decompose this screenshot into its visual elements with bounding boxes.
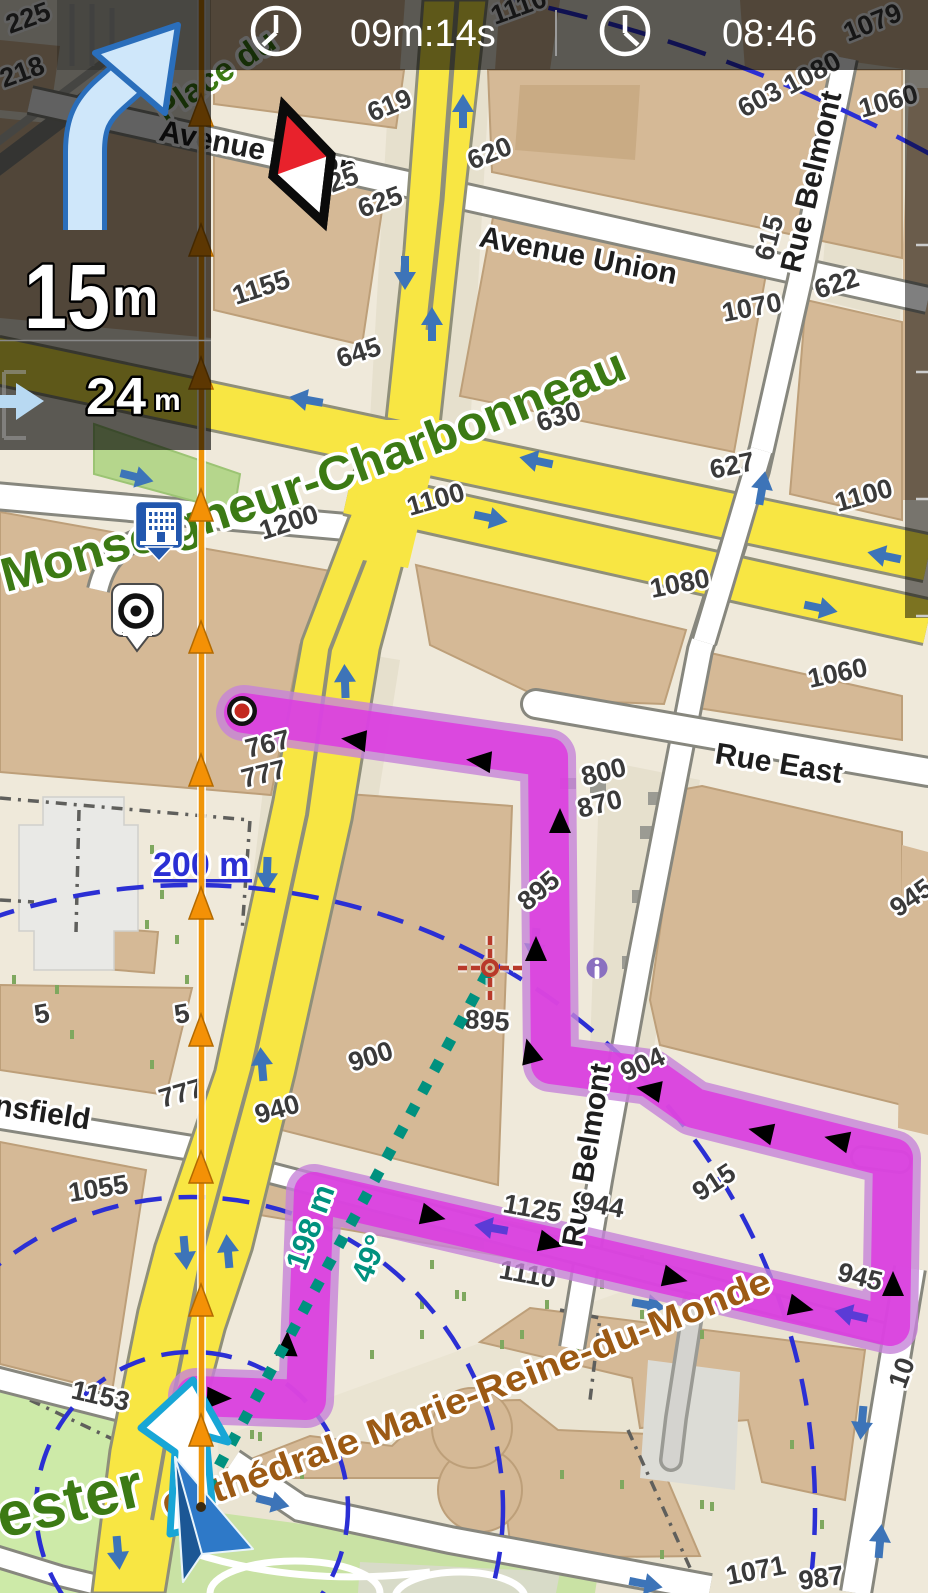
svg-text:895: 895 (464, 1004, 511, 1037)
svg-text:09m:14s: 09m:14s (350, 13, 496, 55)
svg-text:15: 15 (24, 246, 110, 348)
svg-text:m: m (112, 269, 158, 327)
svg-text:m: m (154, 384, 181, 417)
svg-text:987: 987 (797, 1560, 846, 1593)
svg-text:24: 24 (86, 368, 146, 426)
svg-text:08:46: 08:46 (722, 13, 817, 55)
